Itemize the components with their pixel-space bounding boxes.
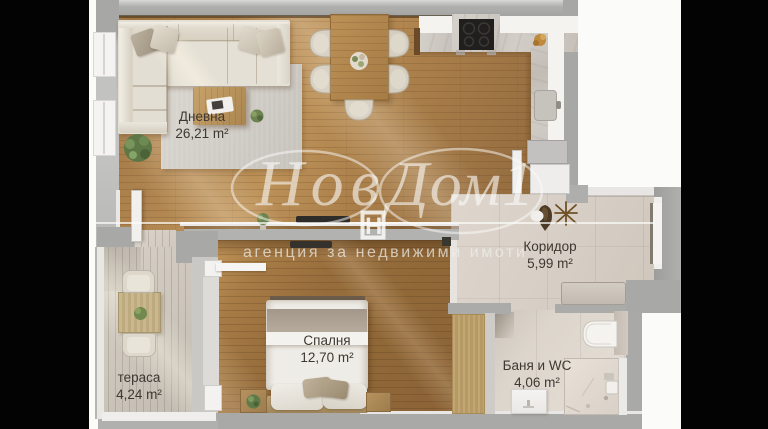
svg-text:H: H — [365, 213, 382, 240]
svg-text:агенция за недвижими имоти: агенция за недвижими имоти — [243, 244, 528, 261]
svg-text:Дом1: Дом1 — [383, 148, 535, 219]
svg-text:Нов: Нов — [255, 147, 386, 220]
